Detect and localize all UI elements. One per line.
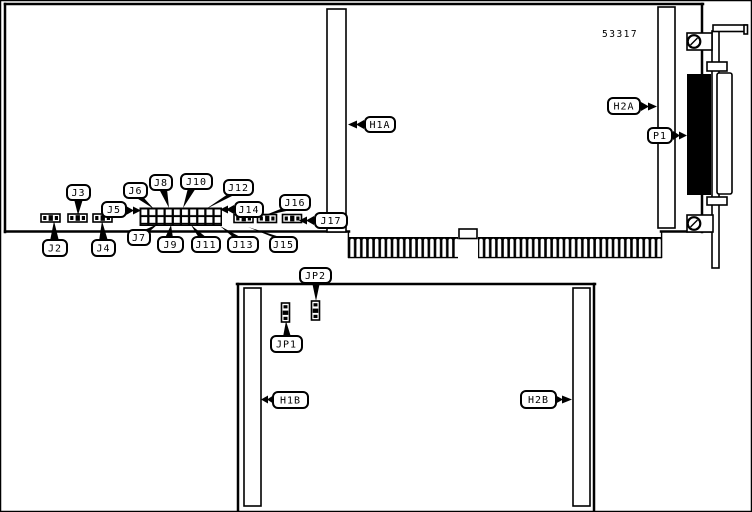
- bracket-screw-bottom: [687, 215, 713, 232]
- callout-j5: J5: [102, 202, 141, 217]
- header-h2b-bar: [573, 288, 590, 506]
- header-h2a-bar: [658, 7, 675, 228]
- callout-j17: J17: [299, 213, 347, 228]
- bracket-screw-top: [687, 33, 712, 50]
- callout-j11: J11: [191, 225, 220, 252]
- bracket-arm-hook: [744, 25, 748, 34]
- svg-text:J3: J3: [71, 188, 85, 199]
- isa-edge-connector: [348, 229, 662, 258]
- callout-j2: J2: [43, 221, 67, 256]
- connector-p1-body: [687, 74, 711, 195]
- svg-text:H2B: H2B: [528, 395, 549, 406]
- callout-j3: J3: [67, 185, 90, 215]
- svg-text:J13: J13: [232, 240, 253, 251]
- header-h1a-bar: [327, 9, 346, 232]
- bracket-top-arm: [713, 25, 747, 32]
- callout-j13: J13: [220, 226, 258, 252]
- svg-text:J14: J14: [238, 205, 259, 216]
- callout-h1a: H1A: [348, 117, 395, 132]
- svg-text:J9: J9: [163, 240, 177, 251]
- svg-text:J11: J11: [195, 240, 216, 251]
- callout-j10: J10: [181, 174, 212, 208]
- callout-p1: P1: [648, 128, 687, 143]
- svg-text:JP1: JP1: [276, 340, 297, 351]
- svg-text:J15: J15: [273, 240, 294, 251]
- jumper-j2-block: [41, 214, 60, 222]
- jumper-block-main: [140, 208, 223, 227]
- svg-text:H1B: H1B: [280, 396, 301, 407]
- callout-jp1: JP1: [271, 321, 302, 352]
- svg-text:J2: J2: [48, 244, 62, 255]
- callout-h2a: H2A: [608, 98, 657, 114]
- db-connector-shell: [717, 73, 732, 194]
- svg-text:H2A: H2A: [613, 102, 634, 113]
- jack-screw-bottom: [707, 197, 727, 205]
- card-jumper-diagram: 53317: [0, 0, 752, 512]
- callout-j14: J14: [220, 202, 263, 217]
- jumper-jp2-block: [312, 301, 320, 320]
- edge-key-tab: [459, 229, 477, 239]
- part-number: 53317: [602, 29, 638, 40]
- callout-h2b: H2B: [521, 391, 572, 408]
- callout-j7: J7: [128, 224, 158, 245]
- header-h1b-bar: [244, 288, 261, 506]
- jumper-jp1-block: [282, 303, 290, 322]
- svg-text:J16: J16: [284, 198, 305, 209]
- callout-j16: J16: [263, 195, 310, 216]
- jack-screw-top: [707, 62, 727, 71]
- callout-j4: J4: [92, 221, 115, 256]
- callout-j9: J9: [158, 225, 183, 252]
- svg-text:J17: J17: [320, 216, 341, 227]
- diagram-canvas: 53317: [0, 0, 752, 512]
- svg-text:J12: J12: [228, 183, 249, 194]
- jumper-j3-block: [68, 214, 87, 222]
- svg-text:J8: J8: [154, 178, 168, 189]
- svg-text:J10: J10: [186, 177, 207, 188]
- callout-h1b: H1B: [261, 392, 308, 408]
- svg-text:J7: J7: [132, 233, 146, 244]
- jumper-j17-block: [283, 215, 302, 223]
- svg-text:J6: J6: [128, 186, 142, 197]
- callout-j8: J8: [150, 175, 172, 208]
- svg-text:H1A: H1A: [369, 120, 390, 131]
- svg-text:J5: J5: [107, 205, 121, 216]
- mounting-bracket: [687, 25, 748, 268]
- svg-text:P1: P1: [653, 131, 667, 142]
- svg-text:J4: J4: [96, 244, 110, 255]
- svg-text:JP2: JP2: [305, 271, 326, 282]
